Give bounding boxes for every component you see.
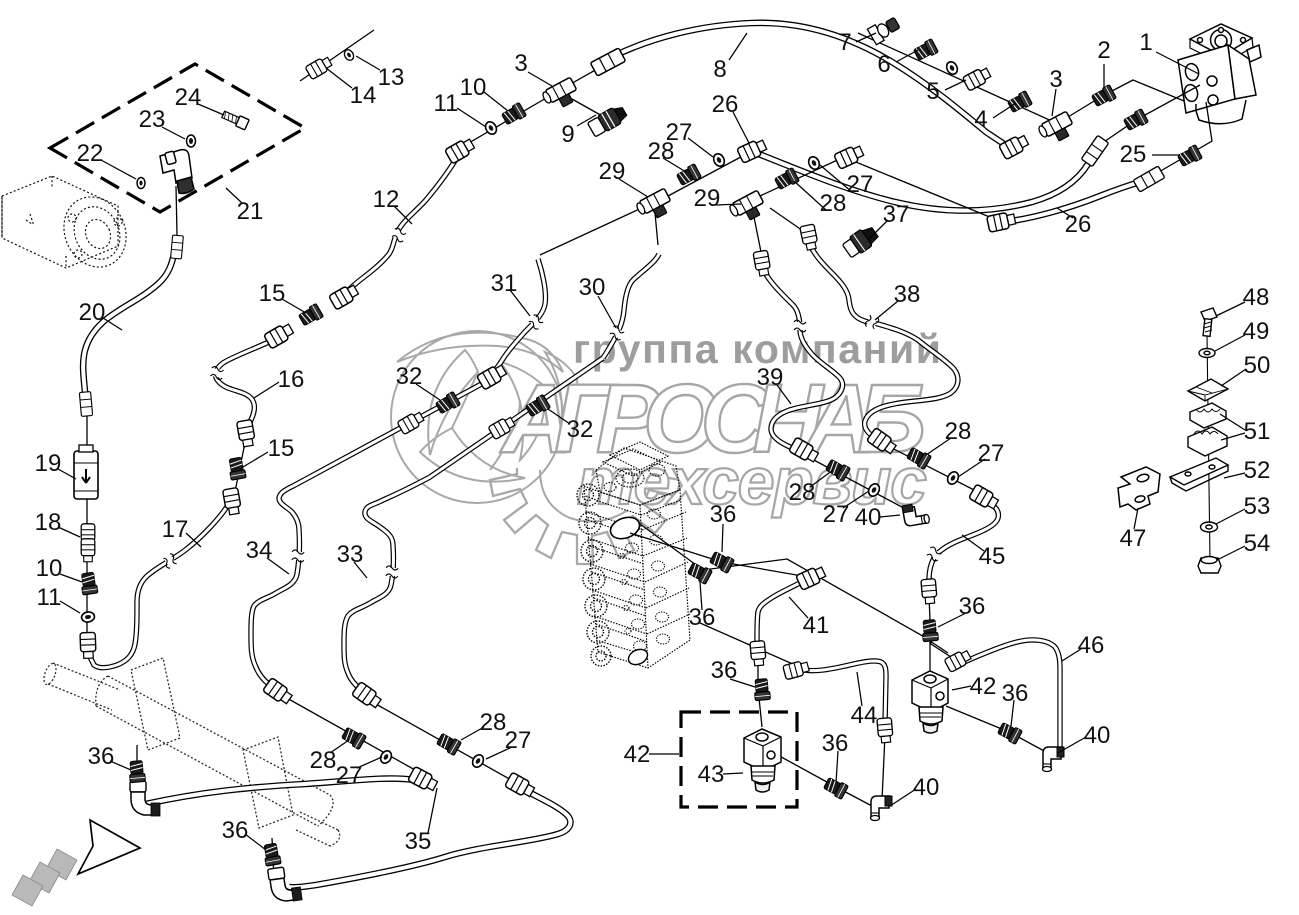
svg-text:14: 14 <box>350 82 377 109</box>
svg-text:40: 40 <box>855 504 882 531</box>
svg-text:27: 27 <box>978 440 1005 467</box>
svg-text:26: 26 <box>1065 211 1092 238</box>
svg-text:38: 38 <box>894 281 921 308</box>
svg-text:6: 6 <box>877 51 890 78</box>
svg-text:27: 27 <box>336 762 363 789</box>
svg-text:42: 42 <box>970 673 997 700</box>
svg-text:51: 51 <box>1244 418 1271 445</box>
svg-text:36: 36 <box>822 730 849 757</box>
svg-text:24: 24 <box>175 84 202 111</box>
svg-text:36: 36 <box>1002 680 1029 707</box>
svg-text:36: 36 <box>88 743 115 770</box>
svg-text:36: 36 <box>959 593 986 620</box>
svg-text:43: 43 <box>698 761 725 788</box>
svg-text:10: 10 <box>36 555 63 582</box>
svg-text:52: 52 <box>1244 457 1271 484</box>
svg-text:11: 11 <box>434 90 459 117</box>
svg-text:29: 29 <box>599 158 626 185</box>
svg-text:39: 39 <box>757 364 784 391</box>
svg-text:36: 36 <box>710 501 737 528</box>
svg-text:33: 33 <box>337 541 364 568</box>
svg-text:30: 30 <box>579 274 606 301</box>
svg-text:32: 32 <box>396 363 423 390</box>
svg-text:53: 53 <box>1244 493 1271 520</box>
svg-text:21: 21 <box>237 198 264 225</box>
svg-text:28: 28 <box>945 418 972 445</box>
svg-text:40: 40 <box>1084 722 1111 749</box>
svg-text:17: 17 <box>162 516 189 543</box>
svg-text:27: 27 <box>847 171 874 198</box>
svg-text:5: 5 <box>926 78 939 105</box>
svg-text:18: 18 <box>35 509 62 536</box>
svg-text:36: 36 <box>711 657 738 684</box>
svg-text:27: 27 <box>823 501 850 528</box>
svg-text:1: 1 <box>1139 29 1152 56</box>
svg-text:54: 54 <box>1244 530 1271 557</box>
svg-text:44: 44 <box>851 702 878 729</box>
svg-text:20: 20 <box>79 299 106 326</box>
svg-text:12: 12 <box>373 186 400 213</box>
svg-text:50: 50 <box>1244 352 1271 379</box>
svg-text:36: 36 <box>222 817 249 844</box>
svg-text:28: 28 <box>648 138 675 165</box>
svg-text:13: 13 <box>378 64 405 91</box>
svg-text:2: 2 <box>1097 37 1110 64</box>
svg-text:42: 42 <box>624 741 651 768</box>
svg-text:31: 31 <box>491 270 518 297</box>
svg-text:8: 8 <box>713 56 726 83</box>
svg-text:15: 15 <box>268 435 295 462</box>
svg-text:40: 40 <box>913 774 940 801</box>
svg-text:23: 23 <box>139 106 166 133</box>
svg-text:7: 7 <box>838 29 851 56</box>
svg-text:45: 45 <box>979 543 1006 570</box>
svg-text:49: 49 <box>1243 318 1270 345</box>
svg-text:28: 28 <box>480 709 507 736</box>
svg-text:47: 47 <box>1120 525 1147 552</box>
svg-text:4: 4 <box>974 106 987 133</box>
svg-text:15: 15 <box>259 280 286 307</box>
svg-text:41: 41 <box>803 612 830 639</box>
svg-text:28: 28 <box>820 190 847 217</box>
svg-text:28: 28 <box>789 479 816 506</box>
svg-text:27: 27 <box>505 727 532 754</box>
svg-text:36: 36 <box>689 604 716 631</box>
svg-text:37: 37 <box>883 201 910 228</box>
svg-text:35: 35 <box>405 828 432 855</box>
svg-text:9: 9 <box>561 121 574 148</box>
svg-text:19: 19 <box>35 450 62 477</box>
svg-text:22: 22 <box>77 140 104 167</box>
svg-text:32: 32 <box>567 416 594 443</box>
svg-text:16: 16 <box>278 366 305 393</box>
svg-text:28: 28 <box>310 747 337 774</box>
svg-text:25: 25 <box>1120 141 1147 168</box>
svg-text:10: 10 <box>460 74 487 101</box>
svg-text:29: 29 <box>694 185 721 212</box>
svg-text:26: 26 <box>712 91 739 118</box>
svg-text:3: 3 <box>514 50 527 77</box>
svg-text:3: 3 <box>1049 66 1062 93</box>
svg-text:34: 34 <box>246 537 273 564</box>
svg-text:46: 46 <box>1078 632 1105 659</box>
svg-text:48: 48 <box>1243 284 1270 311</box>
svg-text:11: 11 <box>37 584 62 611</box>
